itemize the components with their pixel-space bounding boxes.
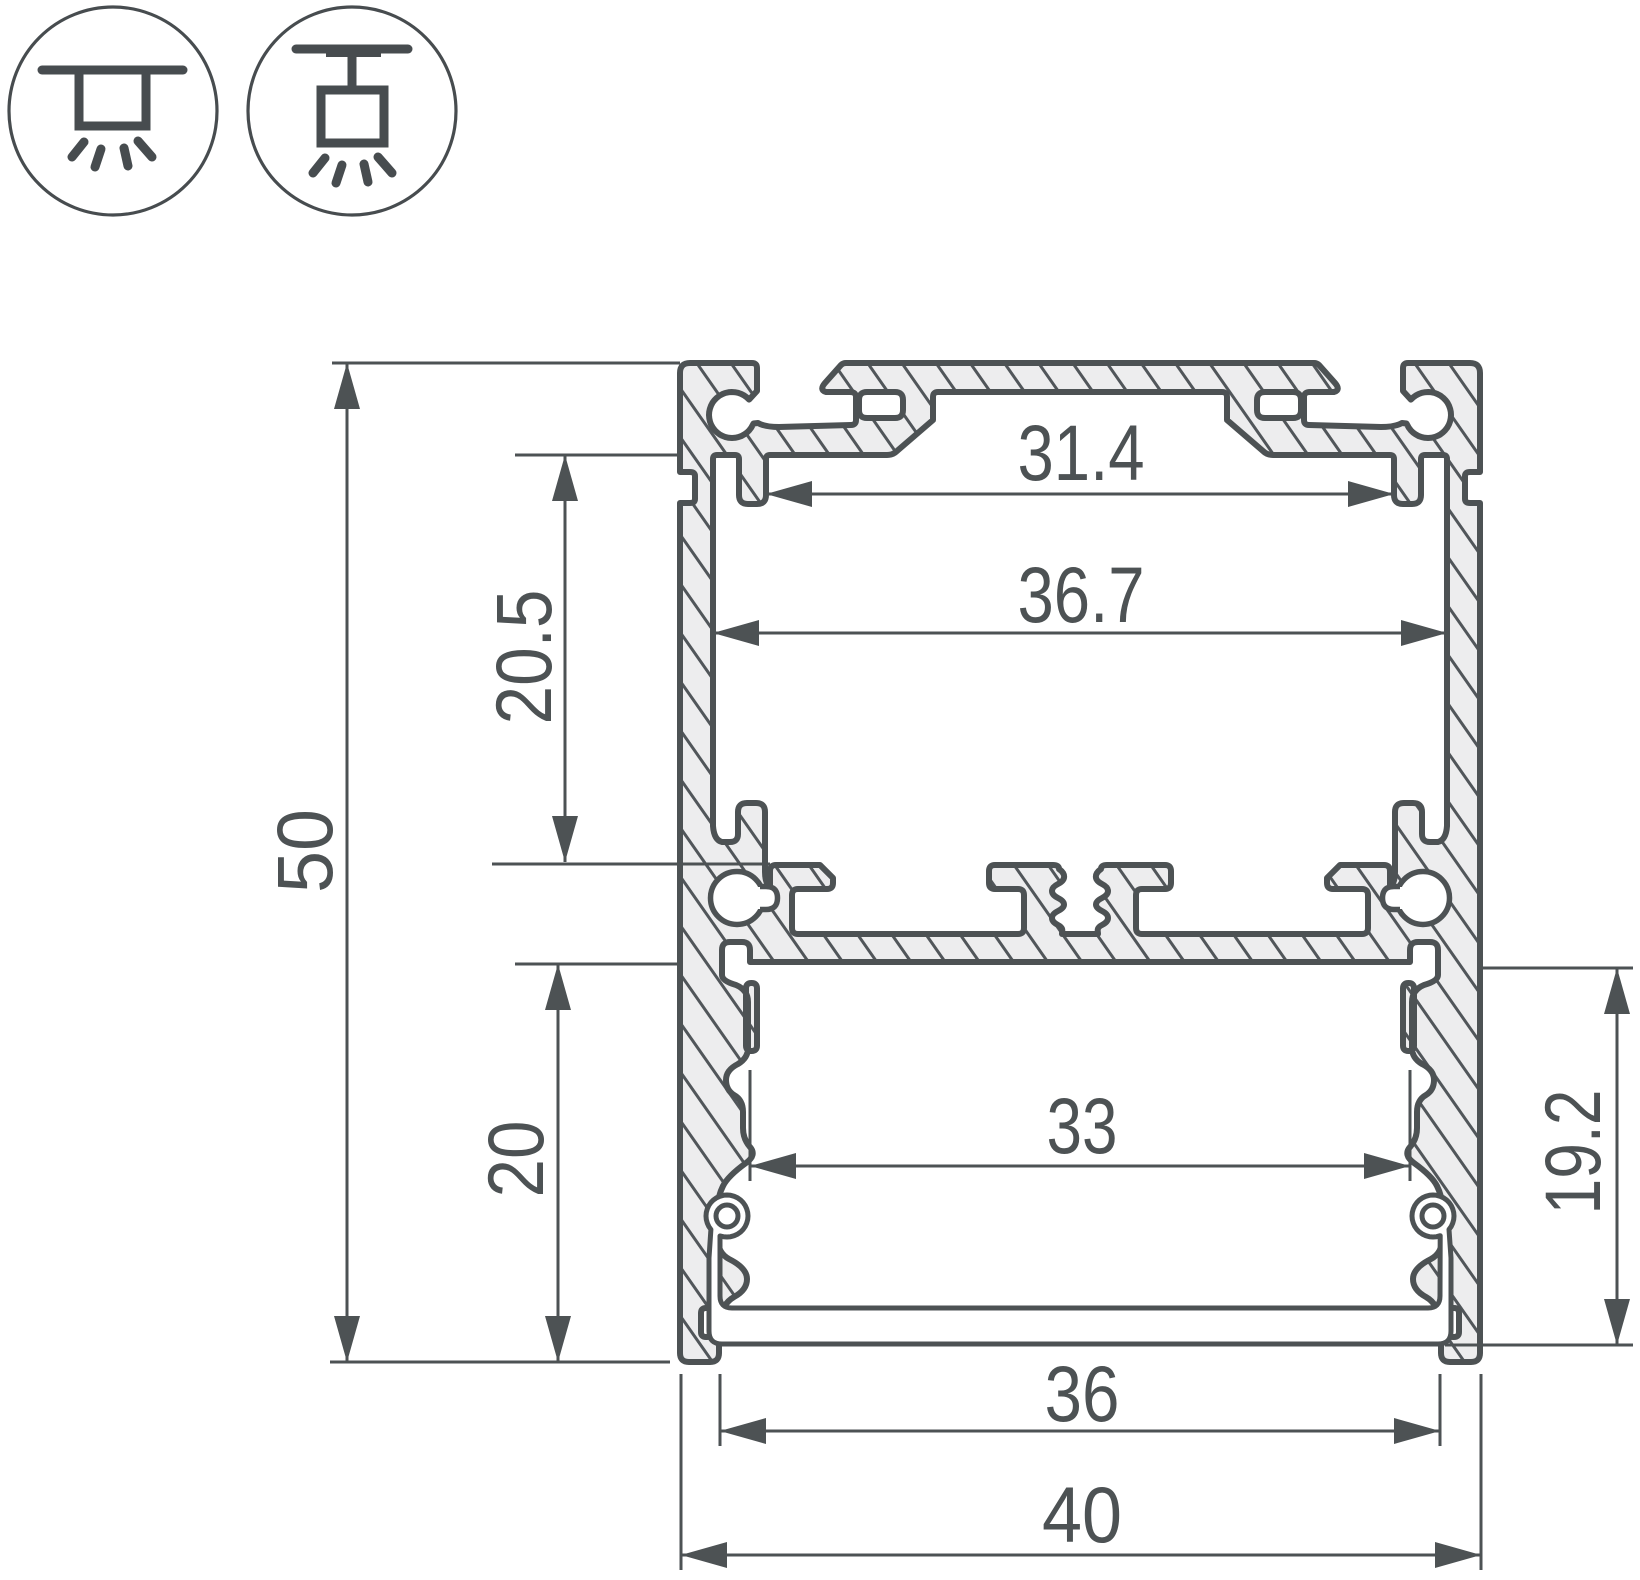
svg-text:19.2: 19.2 bbox=[1528, 1090, 1617, 1215]
svg-text:31.4: 31.4 bbox=[1018, 408, 1145, 497]
svg-text:40: 40 bbox=[1042, 1470, 1122, 1559]
svg-text:36: 36 bbox=[1045, 1349, 1120, 1438]
svg-text:50: 50 bbox=[260, 809, 349, 893]
svg-text:20.5: 20.5 bbox=[479, 590, 568, 725]
svg-text:20: 20 bbox=[471, 1121, 560, 1198]
svg-text:33: 33 bbox=[1047, 1081, 1118, 1170]
svg-text:36.7: 36.7 bbox=[1018, 550, 1145, 639]
